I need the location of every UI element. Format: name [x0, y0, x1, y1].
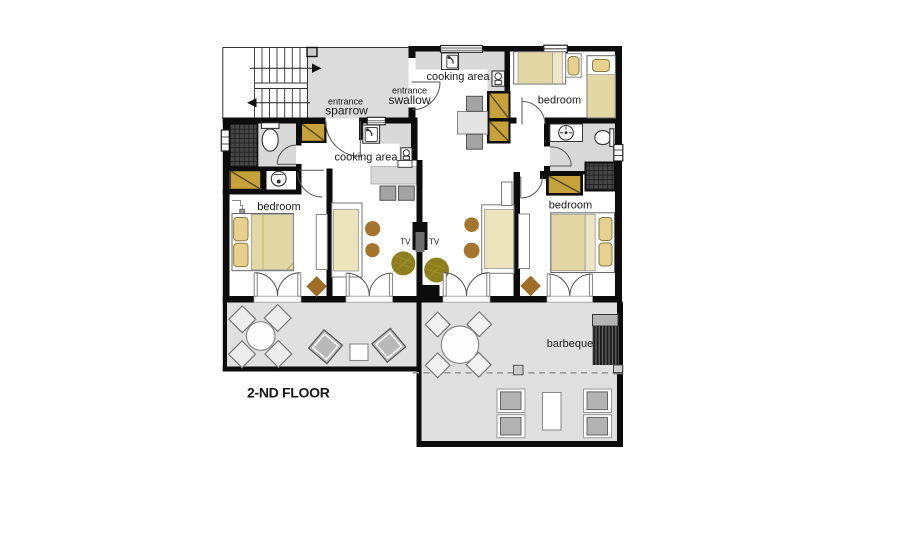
svg-text:bedroom: bedroom: [538, 95, 581, 107]
svg-text:TV: TV: [400, 238, 411, 247]
svg-text:cooking area: cooking area: [427, 71, 491, 83]
svg-text:swallow: swallow: [388, 93, 430, 107]
svg-text:bedroom: bedroom: [549, 200, 592, 212]
svg-text:2-ND FLOOR: 2-ND FLOOR: [247, 385, 330, 401]
svg-text:TV: TV: [429, 238, 440, 247]
svg-text:bedroom: bedroom: [257, 201, 300, 213]
svg-text:barbeque: barbeque: [547, 338, 594, 350]
svg-text:cooking area: cooking area: [335, 152, 399, 164]
svg-text:sparrow: sparrow: [325, 104, 368, 118]
